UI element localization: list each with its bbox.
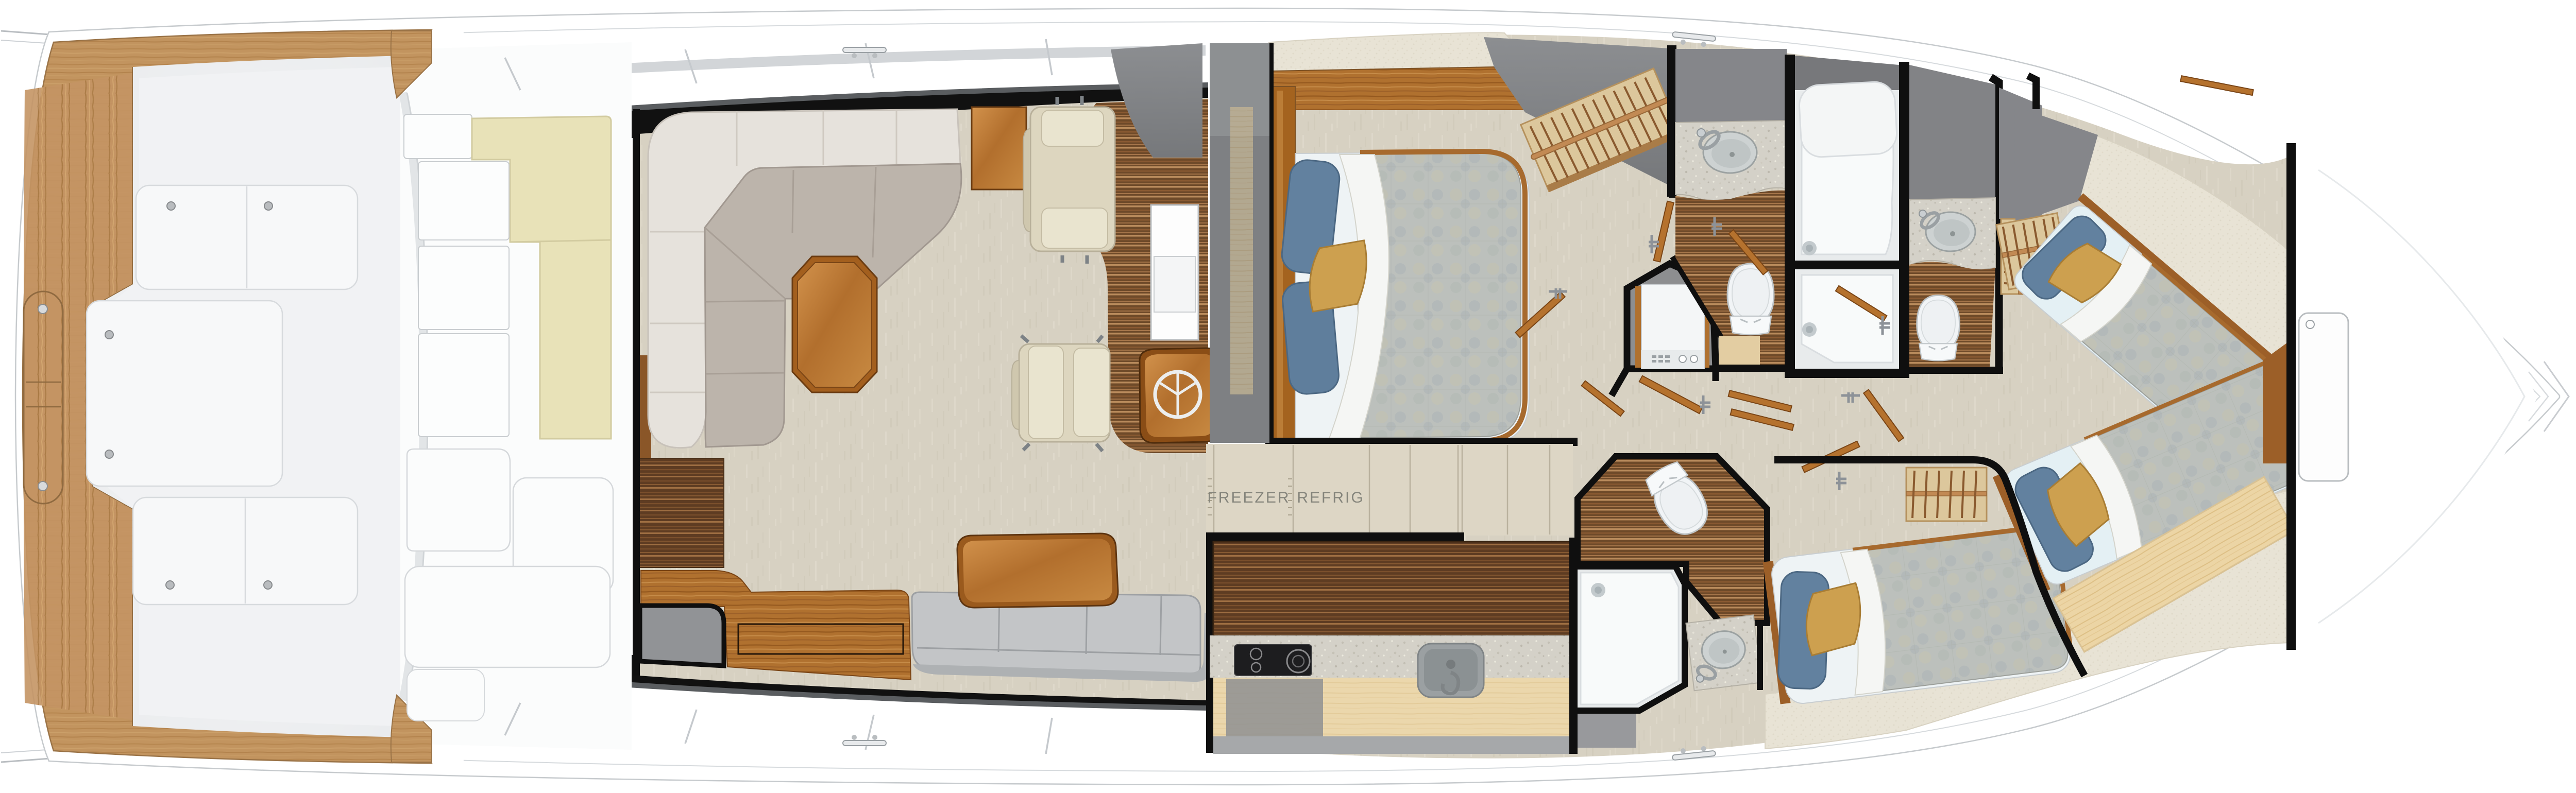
svg-text:FREEZER: FREEZER	[1207, 489, 1290, 506]
svg-text:REFRIG: REFRIG	[1297, 489, 1364, 506]
